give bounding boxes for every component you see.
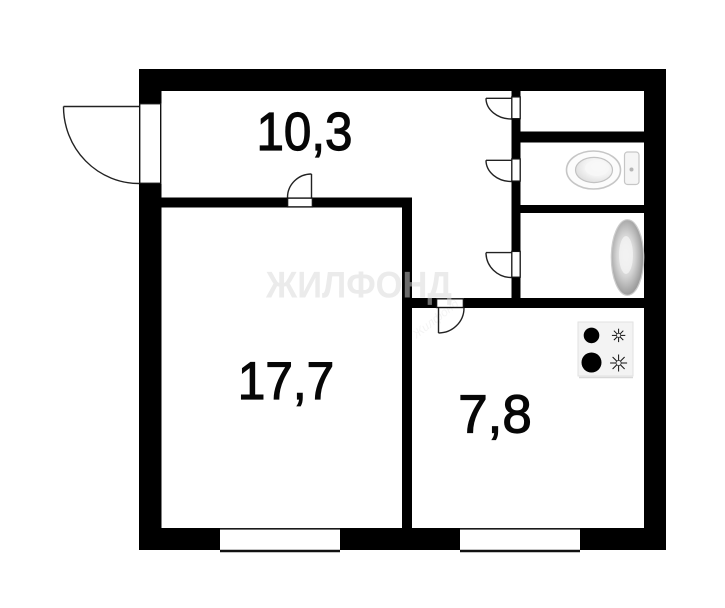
svg-text:17,7: 17,7 [238,352,335,411]
svg-text:ЖИЛФОНД: ЖИЛФОНД [265,265,452,306]
svg-text:10,3: 10,3 [257,102,353,162]
svg-text:7,8: 7,8 [458,384,532,444]
